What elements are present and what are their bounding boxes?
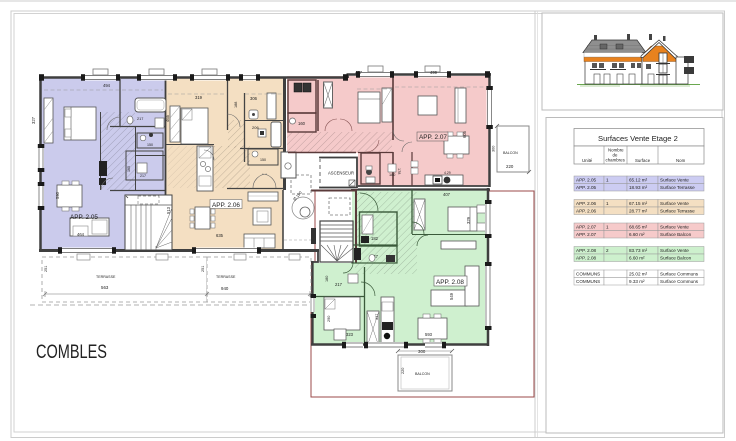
- svg-text:251: 251: [201, 266, 205, 272]
- svg-text:329: 329: [466, 216, 471, 224]
- svg-text:9.33 m²: 9.33 m²: [629, 279, 645, 284]
- svg-text:Unité: Unité: [582, 158, 593, 163]
- svg-text:APP. 2.07: APP. 2.07: [419, 134, 447, 141]
- svg-text:220: 220: [506, 164, 514, 169]
- svg-text:499: 499: [430, 70, 438, 75]
- svg-text:83.73 m²: 83.73 m²: [629, 248, 648, 253]
- svg-text:APP. 2.06: APP. 2.06: [576, 201, 597, 206]
- svg-text:chambres: chambres: [606, 158, 626, 163]
- svg-text:APP. 2.05: APP. 2.05: [576, 185, 597, 190]
- svg-text:150: 150: [147, 143, 153, 147]
- svg-text:306: 306: [250, 96, 258, 101]
- svg-text:APP. 2.06: APP. 2.06: [212, 202, 240, 209]
- svg-text:COMBLES: COMBLES: [36, 342, 107, 363]
- svg-text:4.29: 4.29: [444, 171, 451, 175]
- svg-text:180: 180: [325, 276, 329, 282]
- svg-text:593: 593: [425, 332, 433, 337]
- svg-text:TERRASSE: TERRASSE: [96, 275, 116, 279]
- svg-text:Surface Terrasse: Surface Terrasse: [660, 185, 695, 190]
- svg-text:2: 2: [606, 248, 609, 253]
- svg-text:67.15 m²: 67.15 m²: [629, 201, 648, 206]
- svg-text:251: 251: [44, 266, 48, 272]
- svg-text:160: 160: [298, 121, 306, 126]
- svg-text:465: 465: [165, 114, 170, 122]
- svg-text:Nom: Nom: [676, 158, 686, 163]
- svg-text:Surface Terrasse: Surface Terrasse: [660, 209, 695, 214]
- svg-text:182: 182: [371, 236, 379, 241]
- svg-text:18.93 m²: 18.93 m²: [629, 185, 648, 190]
- svg-text:Surface Communs: Surface Communs: [660, 279, 699, 284]
- svg-text:TERRASSE: TERRASSE: [216, 275, 236, 279]
- svg-text:206: 206: [252, 125, 259, 130]
- svg-text:327: 327: [31, 116, 36, 124]
- svg-text:ASCENSEUR: ASCENSEUR: [328, 171, 354, 176]
- svg-text:180: 180: [389, 173, 395, 177]
- svg-text:217: 217: [335, 282, 343, 287]
- svg-text:494: 494: [103, 83, 111, 88]
- svg-text:65.12 m²: 65.12 m²: [629, 178, 648, 183]
- svg-text:BALCON: BALCON: [503, 151, 518, 155]
- svg-text:APP. 2.06: APP. 2.06: [576, 209, 597, 214]
- svg-text:513: 513: [166, 206, 171, 214]
- svg-text:6.60 m²: 6.60 m²: [629, 256, 645, 261]
- svg-text:319: 319: [195, 95, 203, 100]
- svg-text:COMMUNS: COMMUNS: [576, 279, 600, 284]
- svg-text:337: 337: [375, 314, 379, 320]
- svg-text:Surface Vente: Surface Vente: [660, 225, 689, 230]
- svg-text:188: 188: [234, 102, 238, 108]
- svg-text:178: 178: [397, 168, 401, 174]
- svg-text:APP. 2.07: APP. 2.07: [576, 232, 597, 237]
- svg-text:Surface Balcon: Surface Balcon: [660, 256, 692, 261]
- svg-text:6.60 m²: 6.60 m²: [629, 232, 645, 237]
- svg-text:28.77 m²: 28.77 m²: [629, 209, 648, 214]
- svg-text:549: 549: [449, 292, 454, 300]
- svg-text:323: 323: [346, 332, 354, 337]
- svg-text:Surface Vente: Surface Vente: [660, 201, 689, 206]
- svg-text:407: 407: [443, 192, 451, 197]
- svg-text:1: 1: [606, 225, 609, 230]
- svg-text:APP. 2.08: APP. 2.08: [436, 279, 464, 286]
- svg-text:217: 217: [140, 174, 146, 178]
- svg-text:APP. 2.07: APP. 2.07: [576, 225, 597, 230]
- svg-text:300: 300: [492, 146, 496, 152]
- svg-text:464: 464: [77, 232, 85, 237]
- svg-text:APP. 2.05: APP. 2.05: [70, 214, 98, 221]
- svg-text:Surfaces Vente Etage 2: Surfaces Vente Etage 2: [598, 134, 678, 143]
- svg-text:BALCON: BALCON: [415, 372, 430, 376]
- svg-text:Surface: Surface: [635, 158, 651, 163]
- svg-text:COMMUNS: COMMUNS: [576, 272, 600, 277]
- svg-text:Surface Vente: Surface Vente: [660, 178, 689, 183]
- svg-text:563: 563: [101, 285, 109, 290]
- svg-text:940: 940: [221, 286, 229, 291]
- svg-text:APP. 2.08: APP. 2.08: [576, 248, 597, 253]
- svg-text:290: 290: [327, 316, 331, 322]
- svg-text:25.02 m²: 25.02 m²: [629, 272, 648, 277]
- svg-text:220: 220: [401, 368, 405, 374]
- svg-text:635: 635: [216, 233, 224, 238]
- svg-text:300: 300: [418, 349, 426, 354]
- svg-text:590: 590: [55, 191, 60, 199]
- svg-text:68.65 m²: 68.65 m²: [629, 225, 648, 230]
- svg-text:150: 150: [260, 158, 266, 162]
- svg-text:APP. 2.08: APP. 2.08: [576, 256, 597, 261]
- svg-text:Surface Balcon: Surface Balcon: [660, 232, 692, 237]
- svg-text:217: 217: [137, 117, 143, 121]
- svg-text:Surface Vente: Surface Vente: [660, 248, 689, 253]
- svg-text:1: 1: [606, 178, 609, 183]
- svg-text:1: 1: [606, 201, 609, 206]
- svg-text:APP. 2.05: APP. 2.05: [576, 178, 597, 183]
- svg-text:165: 165: [127, 166, 131, 172]
- svg-text:Surface Communs: Surface Communs: [660, 272, 699, 277]
- svg-text:605: 605: [462, 130, 467, 138]
